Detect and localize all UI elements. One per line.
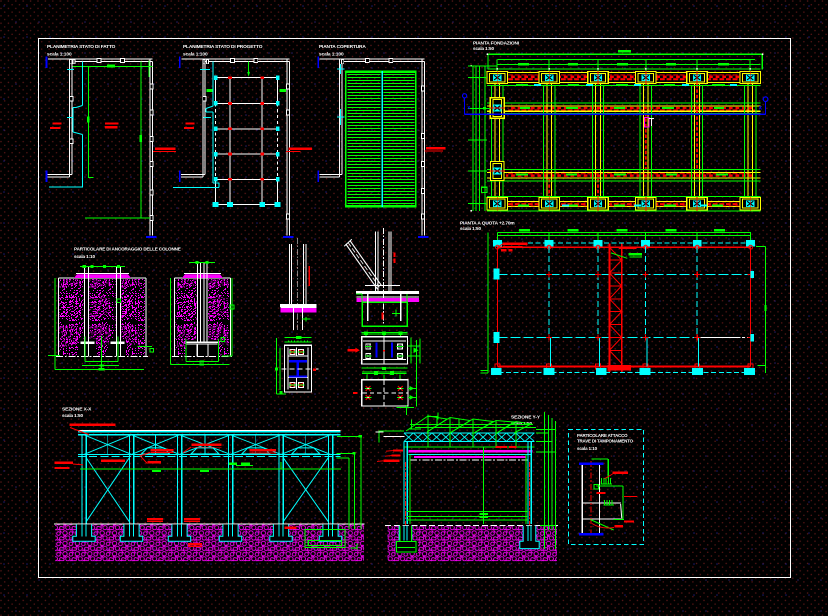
svg-text:PARTICOLARE ATTACCO: PARTICOLARE ATTACCO (577, 433, 628, 438)
svg-text:SEZIONE Y-Y: SEZIONE Y-Y (511, 415, 541, 421)
svg-text:PARTICOLARE DI ANCORAGGIO DELL: PARTICOLARE DI ANCORAGGIO DELLE COLONNE (74, 247, 181, 252)
svg-text:scala 1:100: scala 1:100 (183, 51, 208, 57)
svg-text:PIANTA COPERTURA: PIANTA COPERTURA (319, 44, 366, 50)
svg-text:scala 1:50: scala 1:50 (62, 413, 84, 418)
svg-text:scala 1:10: scala 1:10 (74, 254, 96, 259)
svg-text:scala 1:100: scala 1:100 (47, 51, 72, 57)
svg-text:scala 1:50: scala 1:50 (473, 46, 495, 51)
svg-text:scala 1:100: scala 1:100 (319, 51, 344, 57)
svg-text:PLANIMETRIA STATO DI PROGETTO: PLANIMETRIA STATO DI PROGETTO (183, 44, 263, 50)
svg-text:scala 1:10: scala 1:10 (577, 446, 598, 451)
svg-text:PLANIMETRIA STATO DI FATTO: PLANIMETRIA STATO DI FATTO (47, 44, 116, 50)
svg-text:TRAVE DI TAMPONAMENTO: TRAVE DI TAMPONAMENTO (577, 439, 634, 444)
svg-text:scala 1:50: scala 1:50 (460, 226, 482, 231)
svg-text:SEZIONE X-X: SEZIONE X-X (62, 406, 92, 412)
